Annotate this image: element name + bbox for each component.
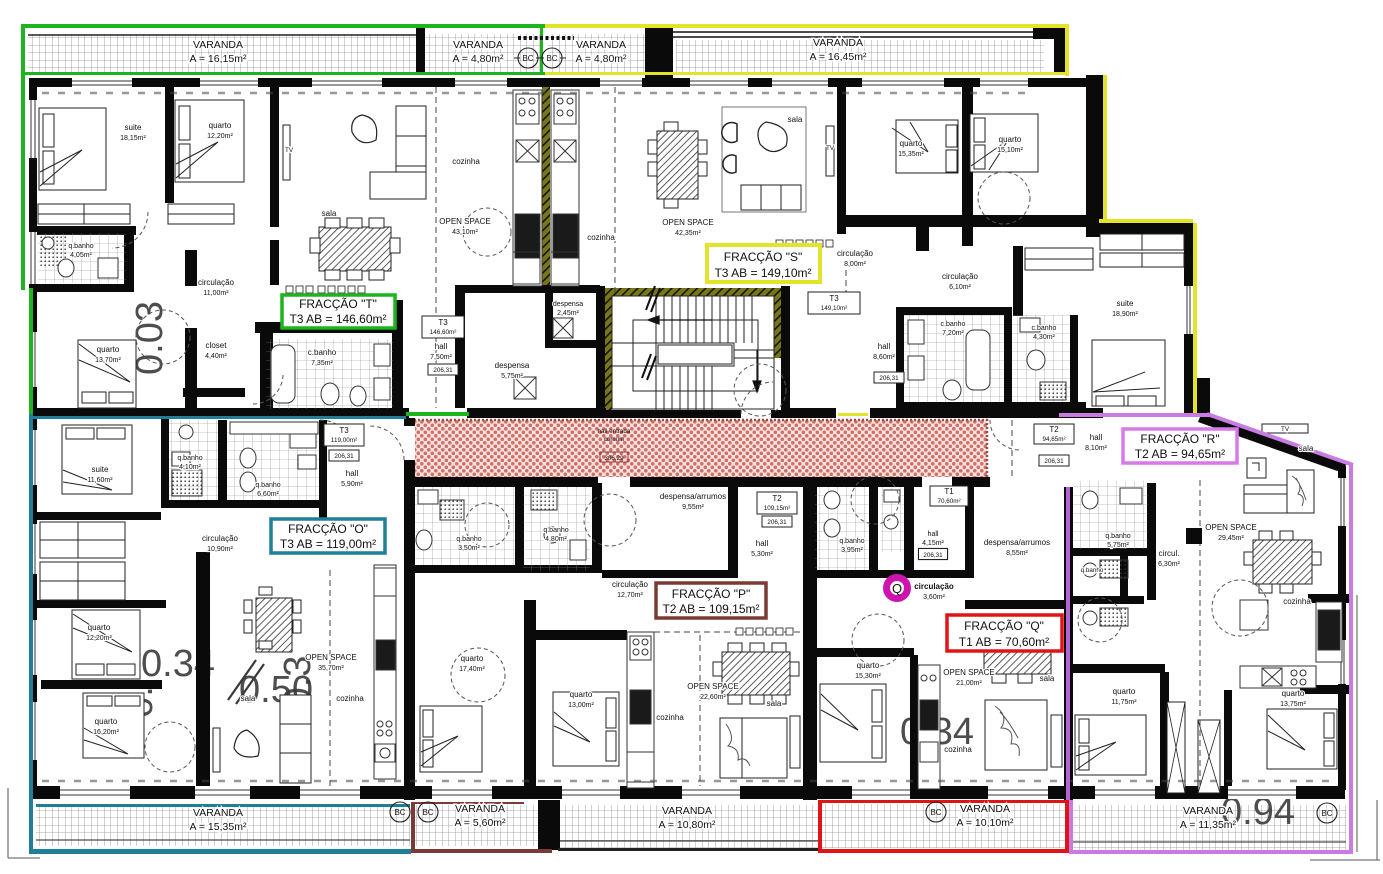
svg-text:8,10m²: 8,10m²: [1085, 445, 1107, 452]
svg-text:suite: suite: [1117, 299, 1134, 308]
svg-text:T3: T3: [438, 318, 448, 327]
svg-text:29,45m²: 29,45m²: [1218, 535, 1244, 542]
svg-text:VARANDA: VARANDA: [662, 805, 712, 817]
svg-text:T3 AB = 119,00m²: T3 AB = 119,00m²: [280, 537, 376, 551]
svg-text:206,31: 206,31: [767, 519, 787, 526]
svg-text:7,20m²: 7,20m²: [942, 330, 964, 337]
svg-text:cozinha: cozinha: [452, 157, 480, 166]
svg-text:hall: hall: [346, 469, 359, 478]
svg-text:VARANDA: VARANDA: [193, 807, 243, 819]
svg-text:hall entrada: hall entrada: [598, 428, 631, 435]
svg-text:q.banho: q.banho: [839, 538, 864, 545]
svg-text:despensa: despensa: [553, 301, 583, 308]
svg-text:cozinha: cozinha: [336, 694, 364, 703]
svg-text:quarto: quarto: [95, 717, 118, 726]
svg-text:15,10m²: 15,10m²: [997, 147, 1023, 154]
svg-text:circul.: circul.: [1159, 549, 1180, 558]
svg-text:T3 AB = 146,60m²: T3 AB = 146,60m²: [289, 312, 386, 326]
svg-text:T2 AB = 94,65m²: T2 AB = 94,65m²: [1135, 447, 1225, 461]
svg-text:FRACÇÃO "S": FRACÇÃO "S": [724, 250, 803, 264]
svg-text:18,90m²: 18,90m²: [1112, 311, 1138, 318]
svg-text:206,31: 206,31: [879, 375, 899, 382]
svg-text:42,35m²: 42,35m²: [675, 230, 701, 237]
svg-text:119,00m²: 119,00m²: [331, 437, 357, 444]
svg-text:4,40m²: 4,40m²: [205, 353, 227, 360]
svg-text:6,30m²: 6,30m²: [1158, 561, 1180, 568]
svg-text:206,31: 206,31: [923, 552, 943, 559]
svg-text:OPEN SPACE: OPEN SPACE: [662, 218, 713, 227]
svg-text:circulação: circulação: [198, 278, 235, 287]
svg-text:10,90m²: 10,90m²: [207, 546, 233, 553]
svg-text:BC: BC: [394, 808, 405, 817]
svg-text:12,20m²: 12,20m²: [207, 133, 233, 140]
svg-text:quarto: quarto: [1282, 689, 1305, 698]
svg-text:18,15m²: 18,15m²: [120, 135, 146, 142]
svg-text:cozinha: cozinha: [944, 745, 972, 754]
svg-text:4,80m²: 4,80m²: [545, 536, 567, 543]
svg-text:OPEN SPACE: OPEN SPACE: [687, 682, 738, 691]
svg-text:VARANDA: VARANDA: [455, 803, 505, 815]
svg-text:hall: hall: [878, 342, 891, 351]
svg-text:c.banho: c.banho: [1032, 325, 1057, 332]
svg-text:quarto: quarto: [88, 623, 111, 632]
svg-text:146,60m²: 146,60m²: [430, 329, 457, 336]
svg-text:BC: BC: [522, 54, 533, 63]
svg-text:T2 AB = 109,15m²: T2 AB = 109,15m²: [662, 602, 759, 616]
svg-text:FRACÇÃO "R": FRACÇÃO "R": [1140, 432, 1219, 446]
svg-text:109,15m²: 109,15m²: [764, 505, 791, 512]
svg-text:4,10m²: 4,10m²: [179, 464, 201, 471]
svg-text:T3: T3: [339, 426, 349, 435]
svg-text:sala: sala: [1040, 674, 1055, 683]
svg-text:A = 10,80m²: A = 10,80m²: [659, 819, 716, 831]
svg-text:22,60m²: 22,60m²: [700, 694, 726, 701]
svg-text:8,60m²: 8,60m²: [873, 354, 895, 361]
svg-text:43,10m²: 43,10m²: [452, 229, 478, 236]
svg-text:quarto: quarto: [999, 135, 1022, 144]
svg-text:13,70m²: 13,70m²: [95, 357, 121, 364]
svg-text:circulação: circulação: [612, 580, 649, 589]
svg-text:quarto: quarto: [209, 121, 232, 130]
svg-text:149,10m²: 149,10m²: [821, 305, 848, 312]
svg-text:circulação: circulação: [942, 272, 979, 281]
svg-text:13,75m²: 13,75m²: [1280, 701, 1306, 708]
svg-text:11,60m²: 11,60m²: [87, 477, 113, 484]
svg-text:15,35m²: 15,35m²: [898, 151, 924, 158]
svg-text:VARANDA: VARANDA: [453, 39, 503, 51]
svg-text:A = 4,80m²: A = 4,80m²: [575, 53, 627, 65]
svg-text:4,30m²: 4,30m²: [1033, 334, 1055, 341]
svg-text:q.banho: q.banho: [1105, 533, 1130, 540]
svg-text:FRACÇÃO "O": FRACÇÃO "O": [288, 522, 368, 536]
svg-text:sala: sala: [1299, 444, 1314, 453]
svg-text:T1 AB = 70,60m²: T1 AB = 70,60m²: [959, 635, 1049, 649]
svg-text:12,20m²: 12,20m²: [86, 635, 112, 642]
svg-text:quarto: quarto: [461, 654, 484, 663]
svg-text:VARANDA: VARANDA: [1183, 805, 1233, 817]
svg-text:FRACÇÃO "P": FRACÇÃO "P": [672, 587, 751, 601]
svg-text:Q: Q: [892, 581, 902, 596]
svg-text:FRACÇÃO "T": FRACÇÃO "T": [299, 297, 377, 311]
svg-text:suite: suite: [92, 465, 109, 474]
svg-text:A = 4,80m²: A = 4,80m²: [452, 53, 504, 65]
svg-text:13,00m²: 13,00m²: [568, 702, 594, 709]
svg-text:A = 10,10m²: A = 10,10m²: [957, 817, 1014, 829]
svg-text:T3: T3: [829, 294, 839, 303]
svg-text:VARANDA: VARANDA: [960, 803, 1010, 815]
svg-text:sala: sala: [767, 699, 782, 708]
svg-text:A = 16,15m²: A = 16,15m²: [190, 53, 247, 65]
svg-text:3,60m²: 3,60m²: [923, 594, 945, 601]
svg-text:circulação: circulação: [202, 534, 239, 543]
svg-text:circulação: circulação: [914, 582, 954, 591]
svg-text:quarto: quarto: [857, 661, 880, 670]
svg-text:A = 5,60m²: A = 5,60m²: [454, 817, 506, 829]
svg-text:quarto: quarto: [97, 345, 120, 354]
svg-text:sala: sala: [788, 115, 803, 124]
svg-text:94,65m²: 94,65m²: [1042, 436, 1065, 443]
svg-text:16,20m²: 16,20m²: [93, 729, 119, 736]
svg-text:7,50m²: 7,50m²: [430, 354, 452, 361]
svg-text:cozinha: cozinha: [656, 713, 684, 722]
svg-text:3,95m²: 3,95m²: [841, 547, 863, 554]
svg-text:12,70m²: 12,70m²: [617, 592, 643, 599]
svg-text:quarto: quarto: [1113, 687, 1136, 696]
svg-text:VARANDA: VARANDA: [813, 37, 863, 49]
svg-text:sala: sala: [241, 694, 256, 703]
svg-text:comum: comum: [604, 436, 625, 443]
svg-text:c.banho: c.banho: [308, 348, 337, 357]
svg-text:9,55m²: 9,55m²: [682, 504, 704, 511]
svg-text:5,75m²: 5,75m²: [501, 373, 523, 380]
svg-text:TV: TV: [826, 145, 835, 152]
svg-text:206,31: 206,31: [1044, 458, 1064, 465]
svg-text:T1: T1: [944, 487, 954, 496]
svg-text:VARANDA: VARANDA: [193, 39, 243, 51]
svg-text:A = 16,45m²: A = 16,45m²: [810, 51, 867, 63]
svg-text:despensa/arrumos: despensa/arrumos: [660, 492, 726, 501]
svg-text:15,30m²: 15,30m²: [855, 673, 881, 680]
svg-text:OPEN SPACE: OPEN SPACE: [1205, 523, 1256, 532]
svg-text:6,10m²: 6,10m²: [949, 284, 971, 291]
svg-text:4,05m²: 4,05m²: [70, 252, 92, 259]
svg-text:5,90m²: 5,90m²: [341, 481, 363, 488]
svg-text:hall: hall: [435, 342, 448, 351]
svg-text:5,75m²: 5,75m²: [1107, 542, 1129, 549]
svg-text:suite: suite: [125, 123, 142, 132]
svg-text:11,75m²: 11,75m²: [1111, 699, 1137, 706]
svg-text:BC: BC: [422, 808, 433, 817]
svg-text:despensa/arrumos: despensa/arrumos: [984, 538, 1050, 547]
svg-text:8,55m²: 8,55m²: [1006, 550, 1028, 557]
svg-text:q.banho: q.banho: [255, 482, 280, 489]
svg-text:8,00m²: 8,00m²: [844, 261, 866, 268]
svg-text:T3 AB = 149,10m²: T3 AB = 149,10m²: [714, 266, 811, 280]
svg-text:T2: T2: [1049, 425, 1059, 434]
svg-text:BC: BC: [930, 808, 941, 817]
svg-text:closet: closet: [206, 341, 228, 350]
svg-text:cozinha: cozinha: [1283, 597, 1311, 606]
svg-text:OPEN SPACE: OPEN SPACE: [305, 653, 356, 662]
svg-text:4,15m²: 4,15m²: [922, 540, 944, 547]
svg-text:q.banho: q.banho: [456, 536, 481, 543]
svg-text:q.banho: q.banho: [177, 455, 202, 462]
svg-text:BC: BC: [546, 54, 557, 63]
svg-text:q.banho: q.banho: [543, 527, 568, 534]
svg-text:70,60m²: 70,60m²: [937, 498, 960, 505]
svg-text:206,31: 206,31: [433, 367, 453, 374]
svg-text:quarto: quarto: [570, 690, 593, 699]
svg-text:A = 11,35m²: A = 11,35m²: [1180, 819, 1237, 831]
svg-text:hall: hall: [1090, 433, 1103, 442]
svg-text:T2: T2: [772, 494, 782, 503]
svg-text:VARANDA: VARANDA: [576, 39, 626, 51]
svg-text:3,50m²: 3,50m²: [458, 545, 480, 552]
svg-text:206,31: 206,31: [334, 453, 354, 460]
svg-text:hall: hall: [756, 539, 769, 548]
svg-text:quarto: quarto: [900, 139, 923, 148]
svg-text:hall: hall: [928, 531, 939, 538]
svg-text:sala: sala: [322, 209, 337, 218]
svg-text:21,00m²: 21,00m²: [956, 680, 982, 687]
svg-text:5,30m²: 5,30m²: [751, 551, 773, 558]
svg-text:306,29: 306,29: [604, 455, 624, 462]
svg-text:c.banho: c.banho: [941, 321, 966, 328]
svg-text:FRACÇÃO "Q": FRACÇÃO "Q": [964, 619, 1044, 633]
svg-text:OPEN SPACE: OPEN SPACE: [943, 668, 994, 677]
svg-text:A = 15,35m²: A = 15,35m²: [190, 821, 247, 833]
svg-text:TV: TV: [285, 147, 294, 154]
svg-text:circulação: circulação: [837, 249, 874, 258]
svg-text:BC: BC: [1321, 809, 1332, 818]
svg-text:despensa: despensa: [495, 361, 530, 370]
svg-text:TV: TV: [1281, 426, 1290, 433]
svg-text:11,00m²: 11,00m²: [203, 290, 229, 297]
svg-text:7,35m²: 7,35m²: [311, 360, 333, 367]
svg-text:q.banho: q.banho: [68, 243, 93, 250]
svg-text:35,70m²: 35,70m²: [318, 665, 344, 672]
svg-text:6,60m²: 6,60m²: [257, 491, 279, 498]
svg-text:OPEN SPACE: OPEN SPACE: [439, 217, 490, 226]
svg-text:17,40m²: 17,40m²: [459, 666, 485, 673]
svg-text:q.banho: q.banho: [1081, 567, 1104, 574]
svg-text:cozinha: cozinha: [587, 233, 615, 242]
svg-text:2,45m²: 2,45m²: [557, 310, 579, 317]
